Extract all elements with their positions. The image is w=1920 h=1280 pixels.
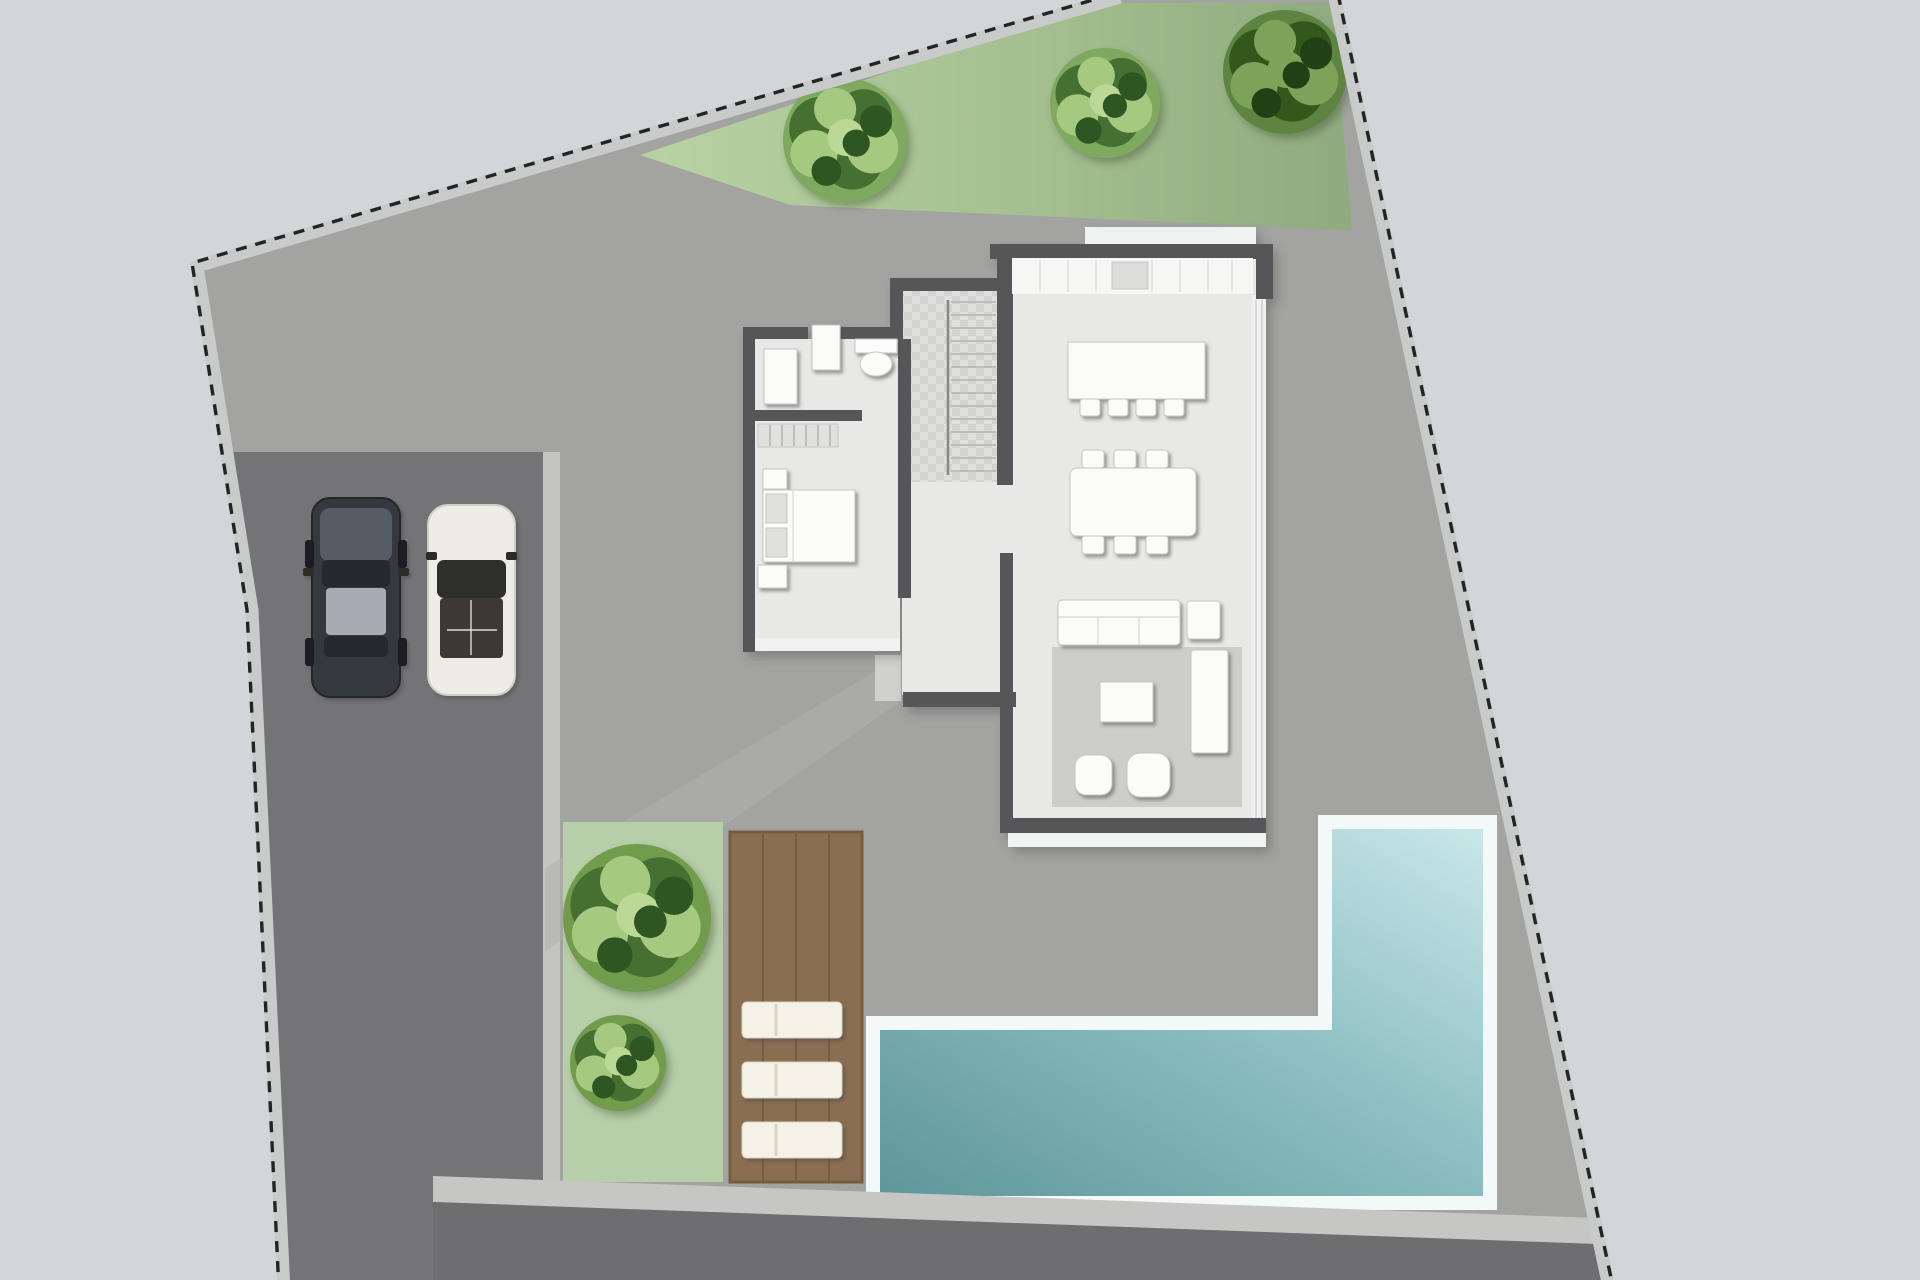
dining-chair xyxy=(1146,450,1168,468)
bedroom-window xyxy=(750,638,900,651)
pouf xyxy=(1075,755,1112,795)
wall-living-bottom xyxy=(1000,818,1266,833)
garden-bush-large xyxy=(563,844,711,992)
wall-stair-top xyxy=(890,278,1013,291)
car-wheel xyxy=(305,540,314,568)
toilet-bowl xyxy=(860,352,892,376)
pouf xyxy=(1127,753,1170,797)
car-mirror xyxy=(426,552,437,560)
bar-stool xyxy=(1080,399,1100,416)
wall-top xyxy=(990,244,1273,259)
wall-bath-top-b xyxy=(841,327,893,339)
car-mirror xyxy=(303,568,314,576)
terrace-edge xyxy=(1008,833,1266,847)
dining-chair xyxy=(1082,450,1104,468)
wall-hall-bottom xyxy=(903,692,1016,707)
toilet-tank xyxy=(855,339,897,353)
dark-car-rear-window xyxy=(324,636,388,657)
pool-lounger xyxy=(742,1122,842,1158)
bar-stool xyxy=(1108,399,1128,416)
dining-chair xyxy=(1114,450,1136,468)
car-wheel xyxy=(305,638,314,666)
entry-step xyxy=(875,655,901,701)
coffee-table xyxy=(1100,682,1153,722)
site-plan-drawing xyxy=(0,0,1920,1280)
car-mirror xyxy=(506,552,517,560)
wall-bath-bed-divider xyxy=(755,410,862,421)
grass-tree-2 xyxy=(1050,48,1160,158)
kitchen-sink xyxy=(1112,262,1148,289)
sofa xyxy=(1058,600,1180,645)
grass-tree-3 xyxy=(1223,10,1347,134)
bed-pillow xyxy=(766,528,787,557)
chaise-lounge xyxy=(1191,650,1228,753)
outdoor-counter-band xyxy=(1085,227,1256,244)
wall-top-right-corner xyxy=(1256,244,1273,299)
garden-bush-small xyxy=(570,1015,666,1111)
nightstand xyxy=(758,565,787,588)
car-wheel xyxy=(398,540,407,568)
dark-car xyxy=(303,498,409,697)
car-wheel xyxy=(398,638,407,666)
white-car-windshield xyxy=(437,560,506,598)
dining-table xyxy=(1070,468,1196,536)
armchair xyxy=(1187,601,1220,639)
wall-stair-right xyxy=(997,258,1013,485)
bed-pillow xyxy=(766,494,787,523)
bar-stool xyxy=(1136,399,1156,416)
dark-car-windshield xyxy=(322,560,390,587)
white-car xyxy=(426,505,517,695)
site-plan-canvas xyxy=(0,0,1920,1280)
car-mirror xyxy=(398,568,409,576)
living-window-wall xyxy=(1252,295,1266,833)
wall-hall-left xyxy=(898,339,911,598)
pool-lounger xyxy=(742,1062,842,1098)
grass-tree-1 xyxy=(783,78,907,202)
wall-living-left xyxy=(1000,553,1013,818)
stairwell-floor xyxy=(902,290,997,482)
nightstand xyxy=(763,469,787,489)
wall-left-outer xyxy=(743,327,755,652)
dining-chair xyxy=(1146,536,1168,554)
dining-chair xyxy=(1114,536,1136,554)
bathroom-vanity xyxy=(764,349,797,404)
bar-stool xyxy=(1164,399,1184,416)
kitchen-island xyxy=(1068,342,1205,399)
pool-lounger xyxy=(742,1002,842,1038)
bathroom-door xyxy=(812,325,840,370)
dining-chair xyxy=(1082,536,1104,554)
driveway-edge-line xyxy=(543,452,560,1182)
dark-car-hood xyxy=(320,508,392,562)
wood-deck xyxy=(730,832,862,1182)
dark-car-roof xyxy=(326,588,386,635)
